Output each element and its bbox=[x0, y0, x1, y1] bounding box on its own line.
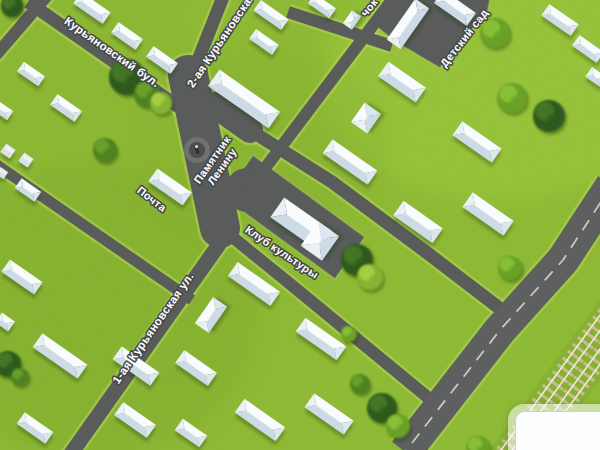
map-canvas[interactable]: Курьяновский бул.2-ая Курьяновская1-ая К… bbox=[0, 0, 600, 450]
info-popup-card bbox=[515, 411, 600, 450]
map-image: Курьяновский бул.2-ая Курьяновская1-ая К… bbox=[0, 0, 600, 450]
info-popup[interactable] bbox=[508, 404, 600, 450]
